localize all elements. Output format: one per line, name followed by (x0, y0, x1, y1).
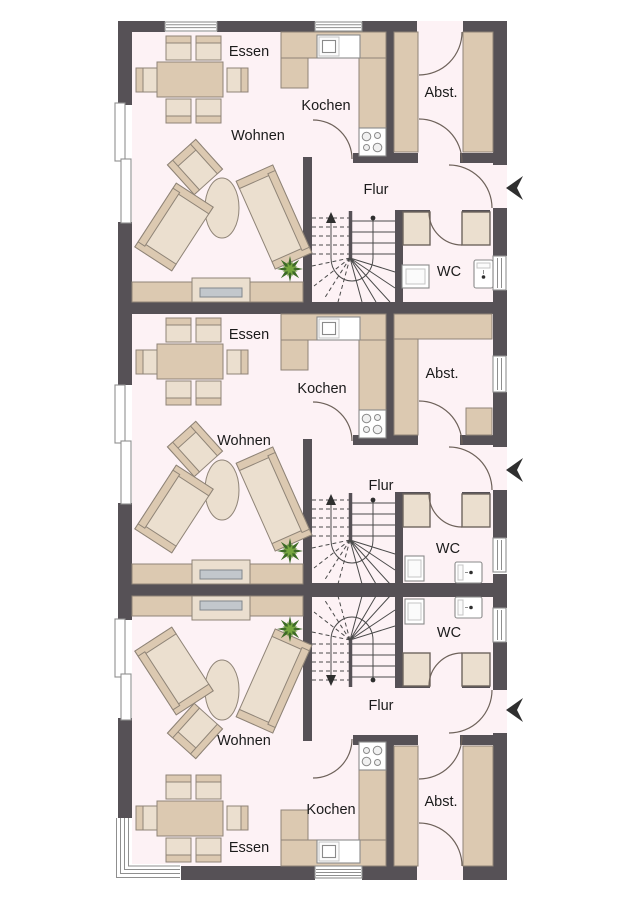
room-label-flur-top: Flur (364, 182, 389, 198)
room-label-abst-bottom: Abst. (424, 794, 457, 810)
room-label-kochen-bottom: Kochen (306, 802, 355, 818)
room-label-wc-middle: WC (436, 541, 460, 557)
window (115, 103, 125, 161)
window (115, 385, 125, 443)
room-label-essen-middle: Essen (229, 327, 269, 343)
window (121, 441, 131, 504)
storage-shelf (394, 32, 418, 152)
unit-divider-wall (118, 583, 507, 597)
window (115, 619, 125, 677)
window (121, 159, 131, 223)
storage-shelf (394, 746, 418, 866)
storage-shelf (394, 314, 492, 339)
unit-divider-wall (118, 302, 507, 314)
window (165, 22, 217, 31)
window (315, 22, 362, 31)
room-label-wohnen-bottom: Wohnen (217, 733, 271, 749)
room-label-wohnen-middle: Wohnen (217, 433, 271, 449)
room-label-flur-middle: Flur (369, 478, 394, 494)
room-label-kochen-top: Kochen (301, 98, 350, 114)
room-label-abst-middle: Abst. (425, 366, 458, 382)
room-label-kochen-middle: Kochen (297, 381, 346, 397)
room-label-essen-top: Essen (229, 44, 269, 60)
floor-plan-canvas: Essen Kochen Wohnen Abst. Flur WC Essen … (0, 0, 636, 900)
room-label-abst-top: Abst. (424, 85, 457, 101)
floor-plan-drawing (0, 0, 636, 900)
window (493, 356, 506, 392)
room-label-wc-top: WC (437, 264, 461, 280)
room-label-wohnen-top: Wohnen (231, 128, 285, 144)
storage-shelf (394, 339, 418, 435)
room-label-essen-bottom: Essen (229, 840, 269, 856)
storage-shelf (466, 408, 492, 435)
room-label-flur-bottom: Flur (369, 698, 394, 714)
room-label-wc-bottom: WC (437, 625, 461, 641)
storage-shelf (463, 746, 493, 866)
storage-shelf (463, 32, 493, 152)
window (121, 674, 131, 720)
